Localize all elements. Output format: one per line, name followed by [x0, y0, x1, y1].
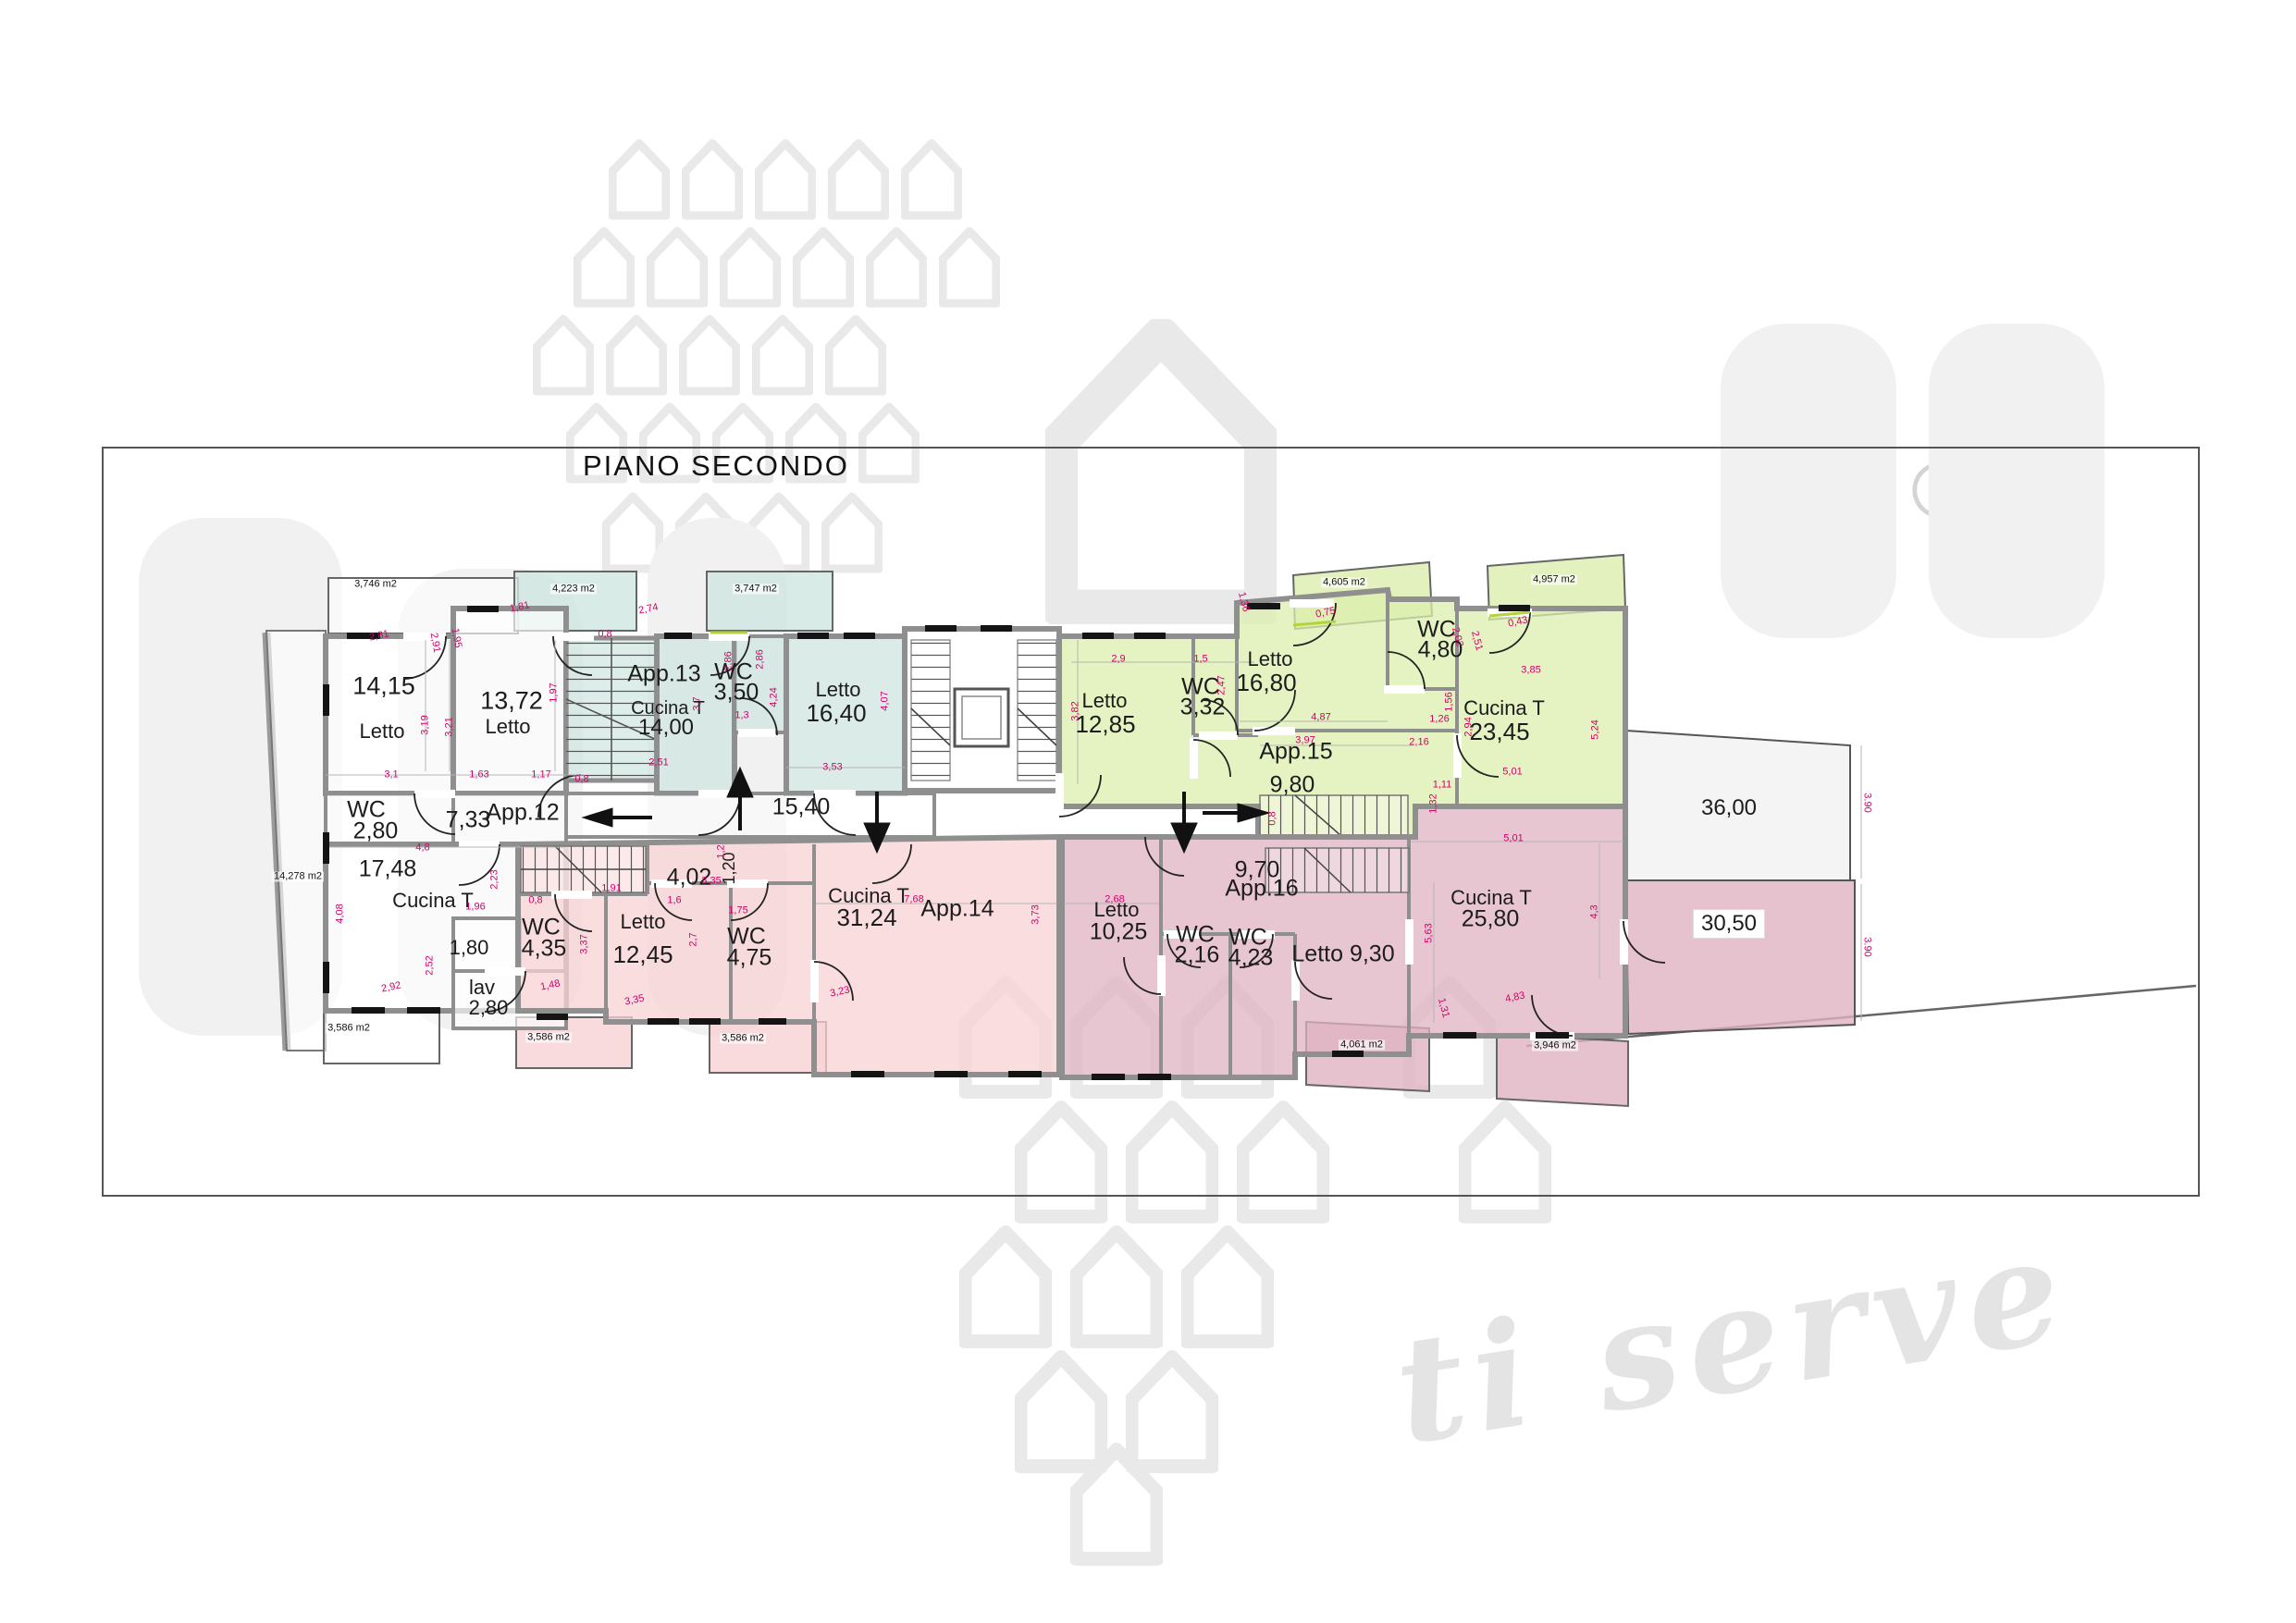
central-stairwell: [905, 629, 1059, 791]
stair-app15: [1260, 795, 1408, 836]
room-cucina-1400: [657, 636, 734, 793]
apartment-13: [657, 636, 905, 793]
terrace-30: [1626, 880, 1855, 1034]
corridor-733: [453, 793, 566, 844]
balcony-3946: [1497, 1034, 1628, 1106]
room-wc-280: [326, 793, 453, 844]
floor-plan-drawing: [0, 0, 2296, 1623]
floor-plan-page: { "title": "PIANO SECONDO", "watermark":…: [0, 0, 2296, 1623]
page-title: PIANO SECONDO: [583, 449, 849, 483]
stair-app13: [566, 638, 657, 781]
balcony-3586-pink2: [710, 1022, 826, 1073]
stair-app16: [1265, 848, 1409, 892]
room-letto-1640: [786, 636, 905, 793]
room-wc-350: [734, 636, 786, 732]
room-180: [453, 918, 520, 971]
room-letto-1415: [326, 636, 453, 793]
stair-app14: [521, 846, 646, 892]
room-letto-1372: [453, 609, 566, 793]
terrace-30-label-box: [1700, 910, 1759, 936]
balcony-3747: [707, 572, 833, 631]
terrace-36: [1626, 731, 1850, 880]
balcony-3586-white: [324, 1011, 439, 1064]
